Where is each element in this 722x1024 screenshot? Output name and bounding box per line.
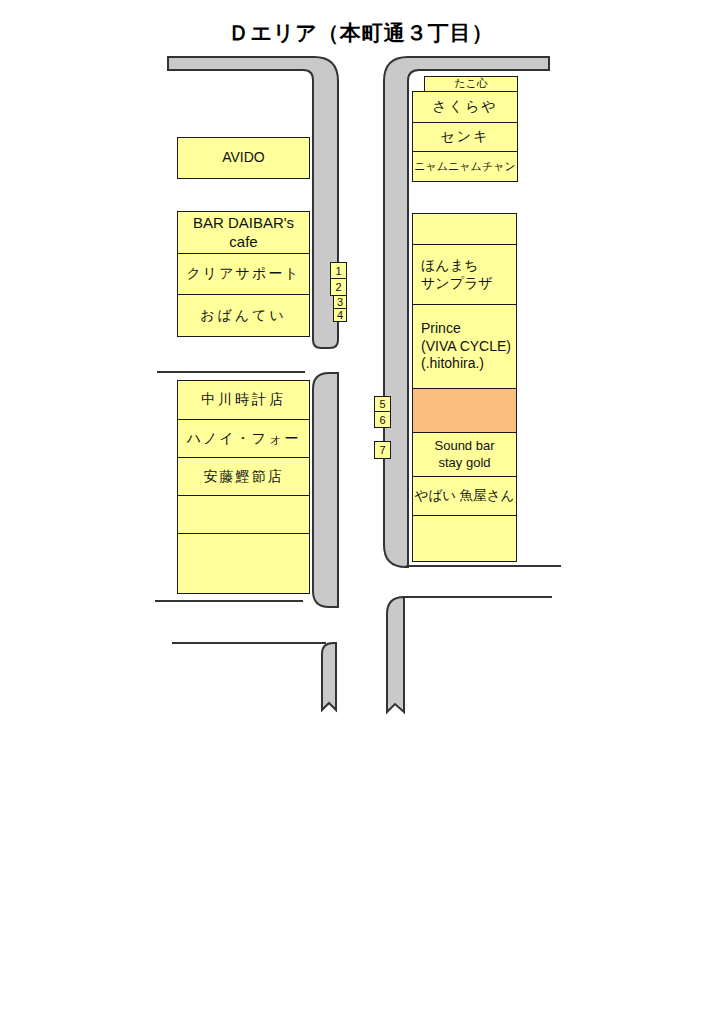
road-lower-left bbox=[313, 373, 338, 607]
store-bar-daibars-cafe: BAR DAIBAR's cafe bbox=[177, 211, 310, 254]
store-nyam-nyam-chan: ニャムニャムチャン bbox=[412, 151, 518, 182]
store-label-line: サンプラザ bbox=[421, 275, 493, 293]
store-ando-katsuobushi: 安藤鰹節店 bbox=[177, 457, 310, 496]
store-label-line: ほんまち bbox=[421, 257, 493, 275]
area-map: Ｄエリア（本町通３丁目） AVIDO BAR DAIBAR's cafe クリア… bbox=[0, 0, 722, 1024]
marker-1: 1 bbox=[330, 262, 347, 279]
store-vacant bbox=[412, 515, 517, 562]
marker-6: 6 bbox=[374, 411, 391, 428]
road-bottom-right bbox=[387, 597, 404, 712]
store-highlighted bbox=[412, 388, 517, 433]
marker-4: 4 bbox=[333, 308, 347, 322]
store-takogokoro: たこ心 bbox=[424, 76, 518, 92]
store-label-line: (VIVA CYCLE) bbox=[421, 338, 511, 356]
store-obantei: おばんてい bbox=[177, 294, 310, 337]
store-sound-bar-stay-gold: Sound bar stay gold bbox=[412, 432, 517, 477]
marker-2: 2 bbox=[330, 278, 347, 296]
road-bottom-left bbox=[322, 643, 336, 710]
marker-7: 7 bbox=[374, 441, 391, 459]
store-vacant bbox=[177, 495, 310, 534]
store-label-line: Sound bar bbox=[435, 438, 495, 454]
marker-5: 5 bbox=[374, 396, 391, 412]
store-yabai-sakanaya: やばい 魚屋さん bbox=[412, 476, 517, 516]
store-label-line: (.hitohira.) bbox=[421, 355, 511, 373]
store-clear-support: クリアサポート bbox=[177, 253, 310, 295]
store-label-line: Prince bbox=[421, 320, 511, 338]
store-label-line: stay gold bbox=[435, 455, 495, 471]
marker-3: 3 bbox=[333, 295, 347, 309]
store-senki: センキ bbox=[412, 122, 518, 152]
store-avido: AVIDO bbox=[177, 137, 310, 179]
store-nakagawa-watch: 中川時計店 bbox=[177, 380, 310, 420]
store-vacant bbox=[412, 213, 517, 245]
store-vacant bbox=[177, 533, 310, 594]
store-hanoi-pho: ハノイ・フォー bbox=[177, 419, 310, 458]
store-prince-viva-cycle: Prince (VIVA CYCLE) (.hitohira.) bbox=[412, 304, 517, 389]
store-sakuraya: さくらや bbox=[412, 91, 518, 123]
store-honmachi-sunplaza: ほんまち サンプラザ bbox=[412, 244, 517, 305]
roads-layer bbox=[0, 0, 722, 1024]
